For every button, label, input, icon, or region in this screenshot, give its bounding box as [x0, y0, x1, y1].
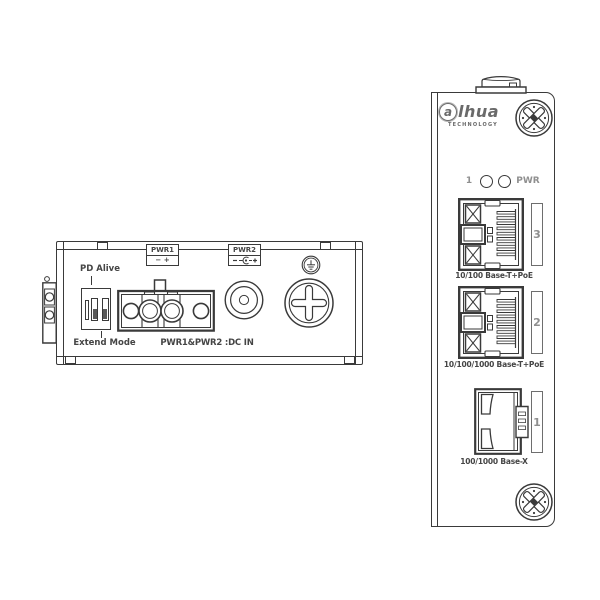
rj45-port-icon	[458, 198, 524, 271]
port-label-1: 100/1000 Base-X	[427, 457, 561, 466]
dip-switch-index-mark	[85, 300, 89, 320]
chassis-right-edge	[355, 242, 362, 364]
dc-in-label: PWR1&PWR2 :DC IN	[147, 338, 267, 348]
dc-polarity-icon	[232, 256, 258, 265]
phillips-screw-icon	[514, 98, 554, 138]
port-number-3: 3	[531, 203, 543, 266]
led-label-1: 1	[462, 176, 476, 186]
port-number-2: 2	[531, 291, 543, 354]
switch-top-view: PD Alive Extend Mode PWR1 − + PWR2	[56, 241, 363, 365]
extend-mode-pointer-line	[101, 331, 102, 338]
switch-front-panel: a lhua TECHNOLOGY 1 PWR	[431, 92, 555, 527]
led-label-pwr: PWR	[514, 176, 542, 186]
diagram-page: { "left_device": { "labels": { "pd_alive…	[0, 0, 600, 600]
pwr1-label: PWR1	[147, 245, 178, 256]
pwr2-label: PWR2	[229, 245, 260, 256]
pwr1-polarity: − +	[147, 256, 178, 266]
pwr2-label-box: PWR2	[228, 244, 261, 266]
pwr1-label-box: PWR1 − +	[146, 244, 179, 266]
terminal-block-drawing	[117, 279, 215, 332]
port-label-3: 10/100 Base-T+PoE	[427, 271, 561, 280]
pwr2-polarity-symbol	[229, 256, 260, 266]
led-indicator-1	[480, 175, 493, 188]
pd-alive-pointer-line	[91, 276, 92, 285]
logo-circled-a: a	[439, 103, 457, 121]
rj45-port-icon	[458, 286, 524, 359]
sfp-port-icon	[474, 388, 530, 455]
extend-mode-label: Extend Mode	[62, 338, 147, 348]
dip-switch-handle-1	[93, 309, 97, 319]
top-knob-drawing	[473, 74, 529, 94]
ground-screw-icon	[301, 255, 321, 275]
chassis-bottom-edge	[57, 356, 362, 364]
logo-text: lhua	[458, 102, 499, 121]
phillips-screw-icon	[514, 482, 554, 522]
port-label-2: 10/100/1000 Base-T+PoE	[427, 360, 561, 369]
chassis-notch	[344, 356, 355, 364]
chassis-notch	[65, 356, 76, 364]
port-number-1: 1	[531, 391, 543, 453]
chassis-notch	[97, 242, 108, 250]
dip-switch-handle-2	[103, 309, 107, 319]
chassis-notch	[320, 242, 331, 250]
led-indicator-pwr	[498, 175, 511, 188]
phillips-screw-icon	[283, 277, 335, 329]
din-clip-drawing	[42, 276, 57, 344]
pd-alive-label: PD Alive	[67, 264, 133, 274]
dip-switch	[81, 288, 111, 330]
dc-jack-drawing	[224, 280, 264, 320]
